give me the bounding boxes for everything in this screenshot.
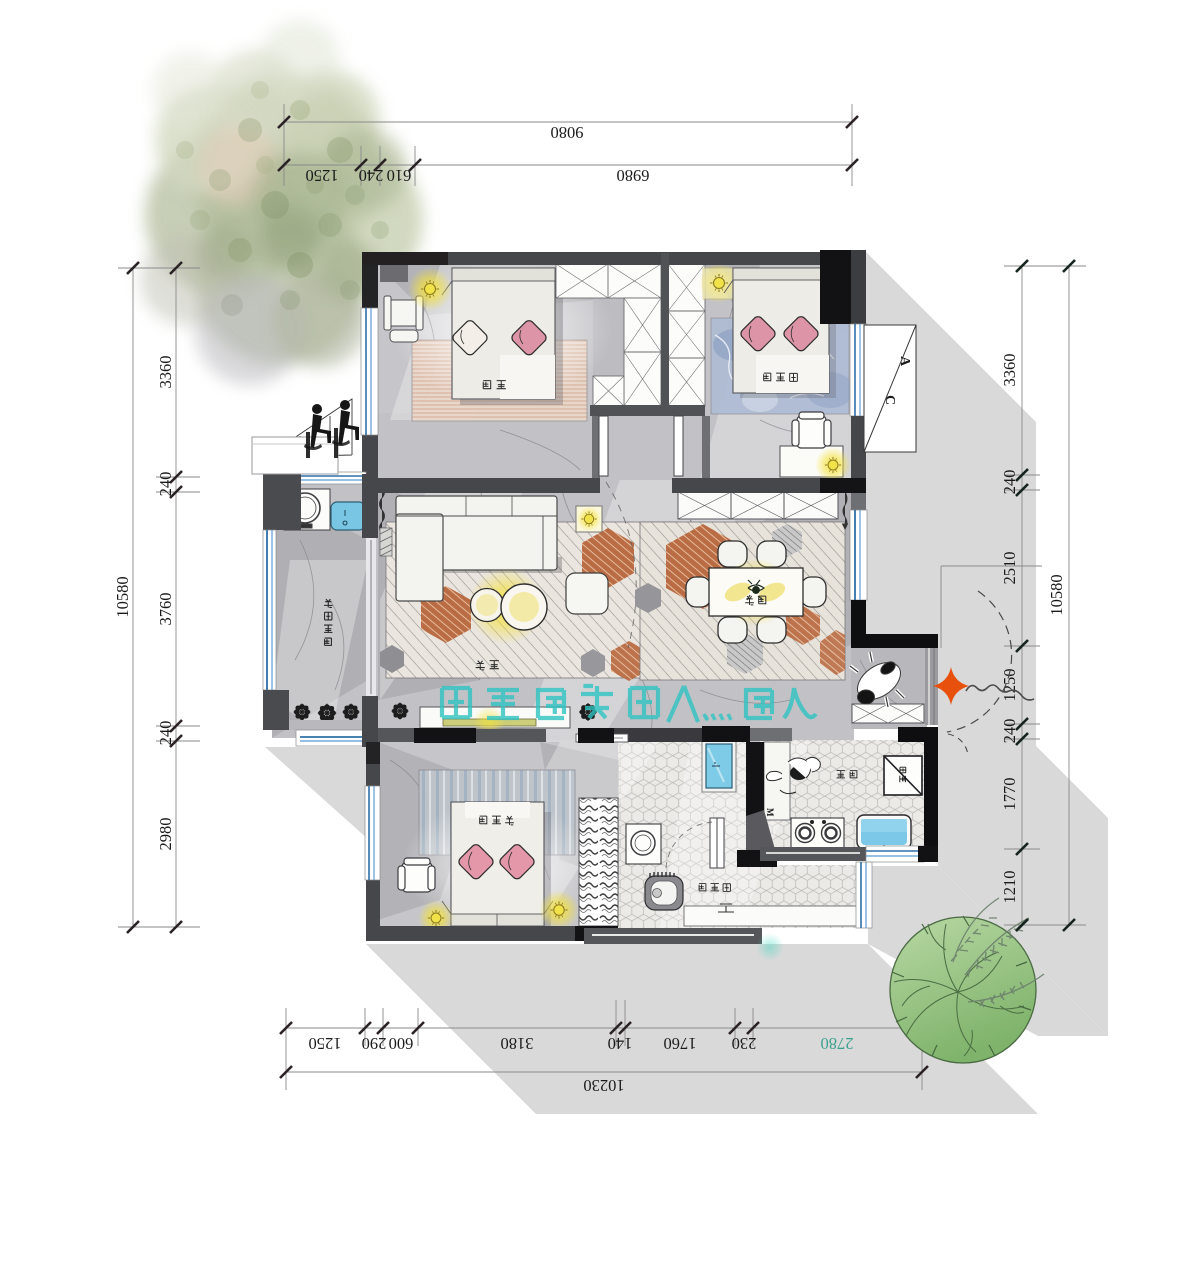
svg-text:M: M xyxy=(765,808,775,817)
svg-text:10580: 10580 xyxy=(113,576,132,617)
svg-text:A: A xyxy=(897,356,912,367)
svg-text:1760: 1760 xyxy=(664,1034,697,1053)
svg-text:1250: 1250 xyxy=(309,1034,342,1053)
svg-text:2980: 2980 xyxy=(156,818,175,851)
svg-text:9080: 9080 xyxy=(551,123,584,142)
svg-text:230: 230 xyxy=(732,1034,757,1053)
svg-text:1770: 1770 xyxy=(1000,778,1019,811)
svg-text:240: 240 xyxy=(359,166,384,185)
svg-text:1250: 1250 xyxy=(306,166,339,185)
svg-text:3760: 3760 xyxy=(156,593,175,626)
svg-text:2510: 2510 xyxy=(1000,552,1019,585)
svg-text:C: C xyxy=(882,395,897,405)
svg-text:140: 140 xyxy=(608,1034,633,1053)
svg-text:240: 240 xyxy=(156,472,175,497)
svg-text:2780: 2780 xyxy=(821,1034,854,1053)
svg-text:10580: 10580 xyxy=(1047,574,1066,615)
svg-text:240: 240 xyxy=(1000,470,1019,495)
svg-text:290: 290 xyxy=(362,1034,387,1053)
svg-text:3180: 3180 xyxy=(501,1034,534,1053)
svg-text:240: 240 xyxy=(1000,719,1019,744)
svg-text:3360: 3360 xyxy=(1000,354,1019,387)
svg-text:3360: 3360 xyxy=(156,356,175,389)
svg-text:610: 610 xyxy=(387,166,412,185)
svg-text:1210: 1210 xyxy=(1000,871,1019,904)
svg-text:240: 240 xyxy=(156,721,175,746)
svg-text:600: 600 xyxy=(389,1034,414,1053)
svg-text:6980: 6980 xyxy=(617,166,650,185)
svg-text:10230: 10230 xyxy=(583,1076,624,1095)
